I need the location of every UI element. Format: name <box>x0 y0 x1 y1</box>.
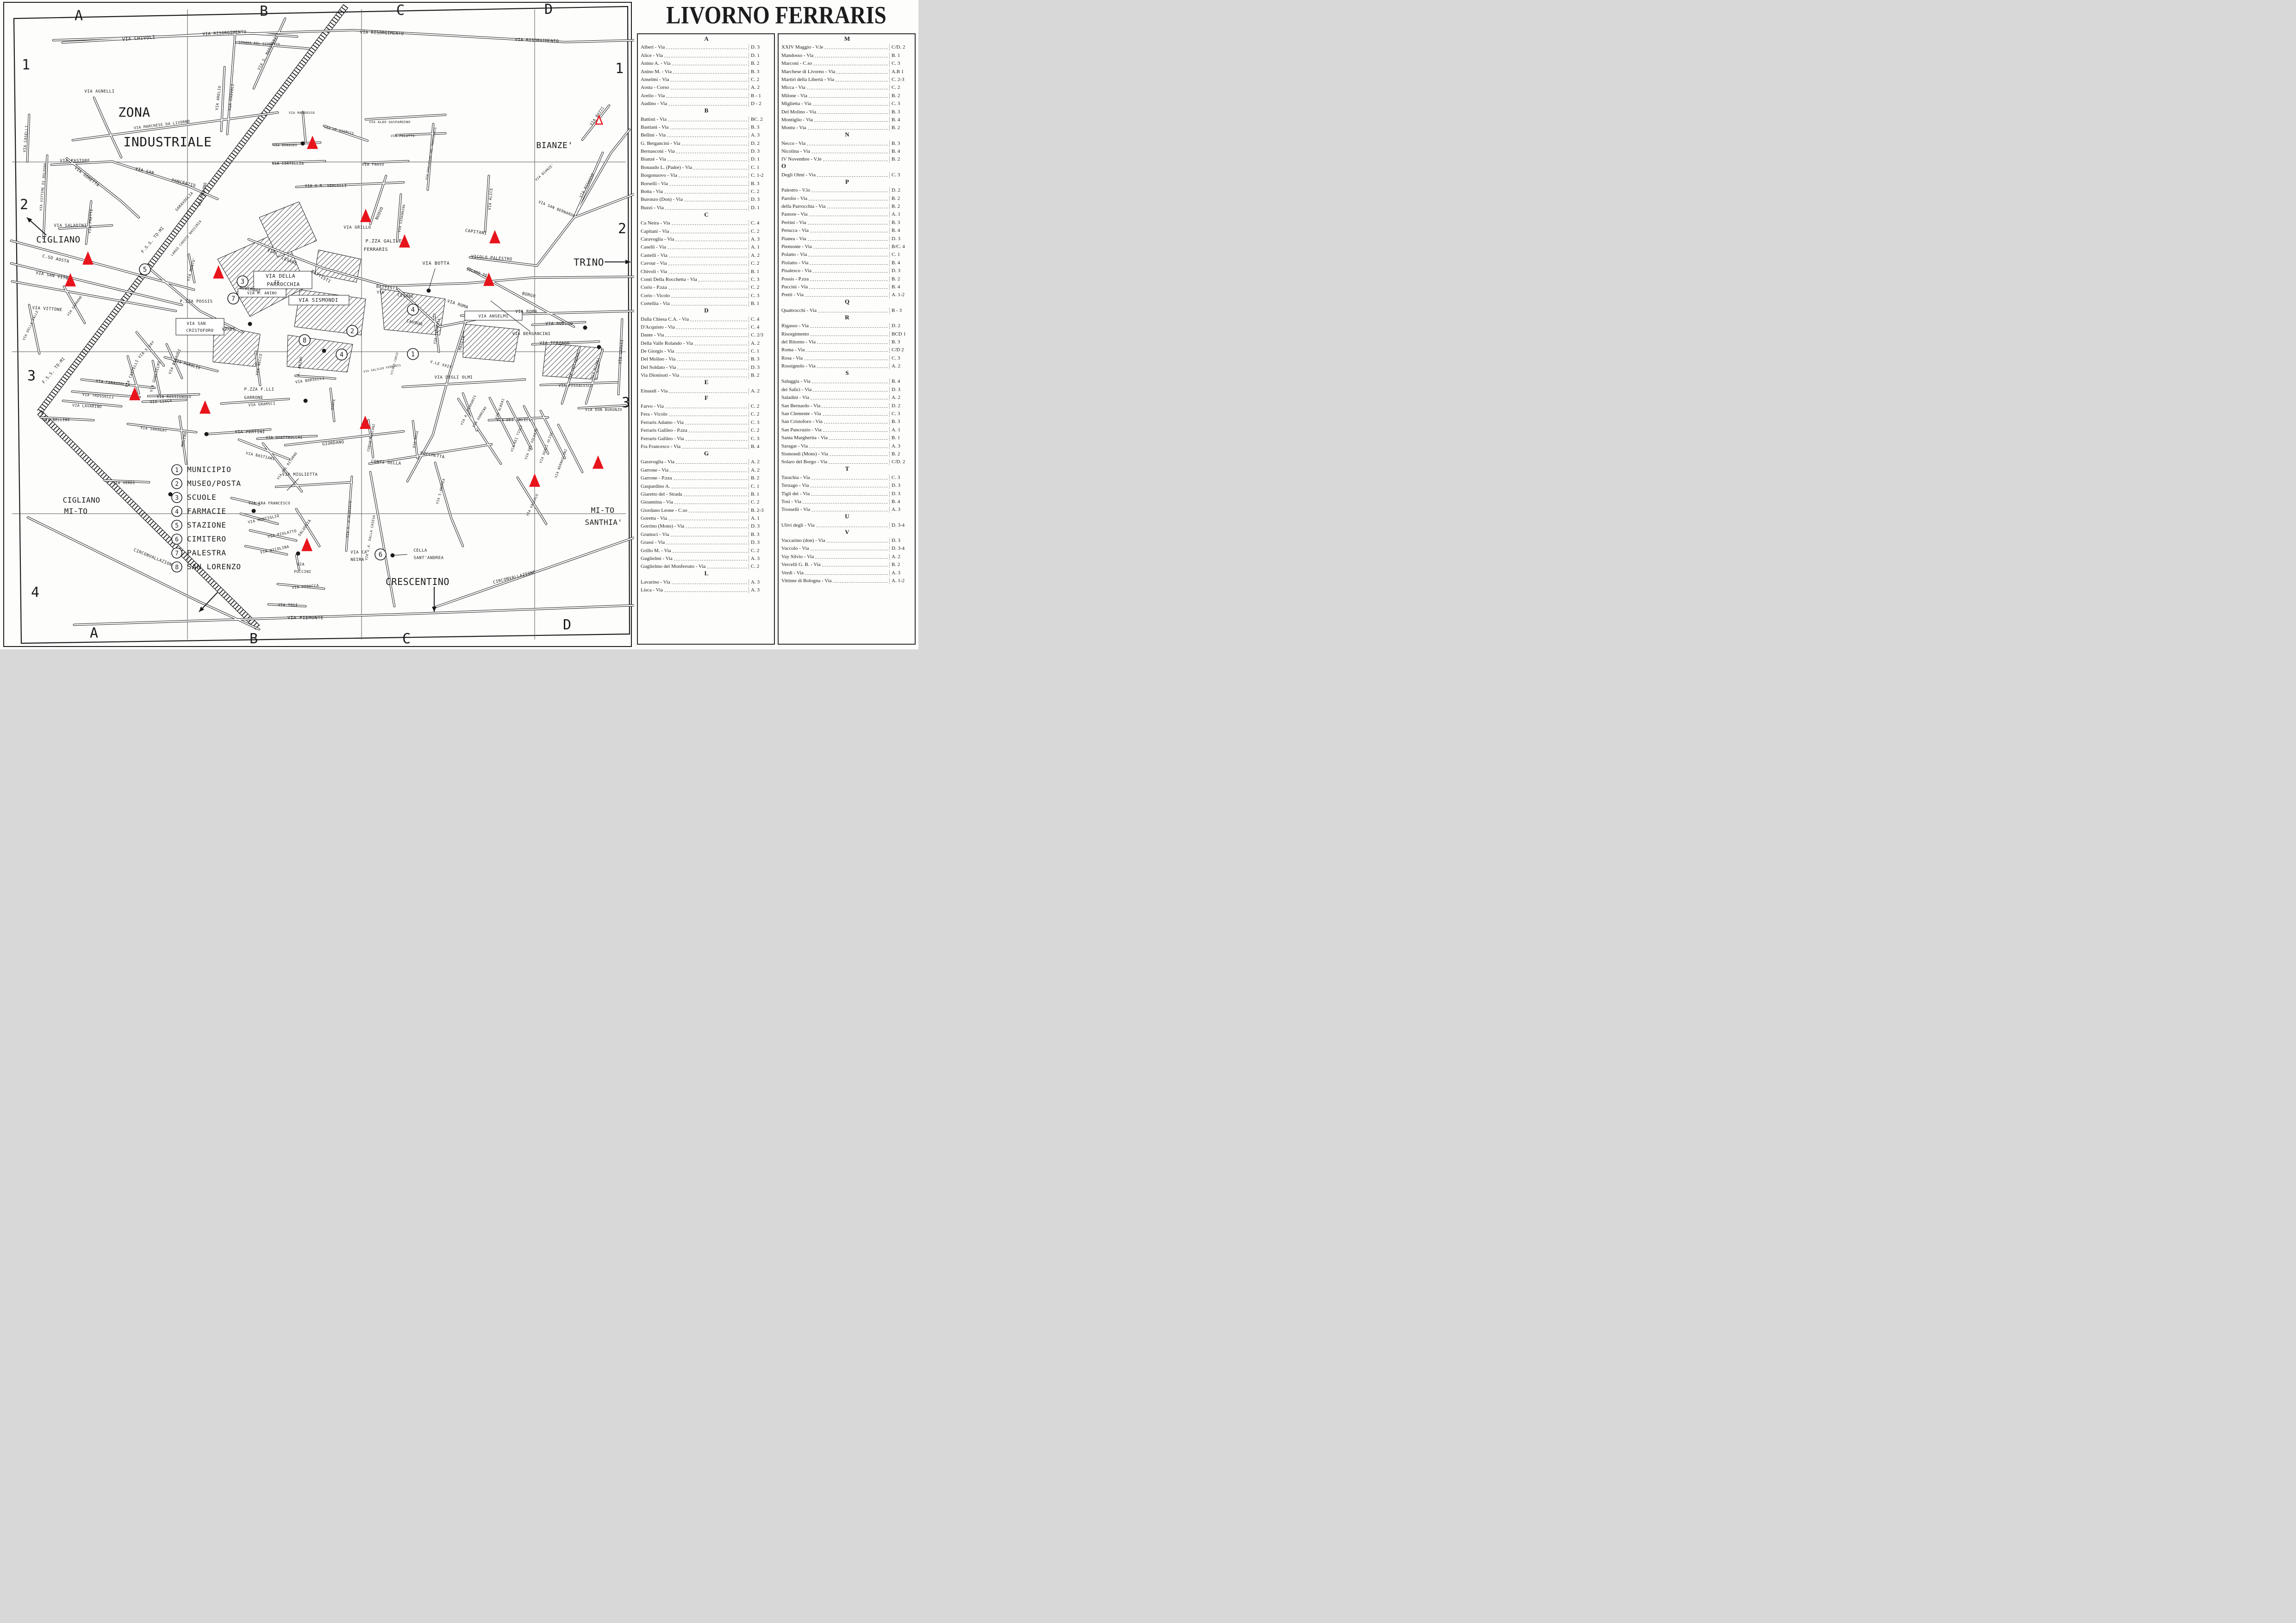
dotted-leader <box>809 200 888 200</box>
index-column-2: MXXIV Maggio - V.leC/D. 2Mandosso - ViaB… <box>778 33 916 645</box>
street-name: Pertini - Via <box>781 220 806 226</box>
dotted-leader <box>805 296 888 297</box>
road <box>263 443 302 491</box>
street-label: CIGLIANO <box>62 496 100 504</box>
street-label: P.ZZA F.LLI <box>244 387 274 392</box>
dotted-leader <box>803 503 888 504</box>
dotted-leader <box>707 568 747 568</box>
grid-reference: A. 3 <box>749 587 772 593</box>
dotted-leader <box>808 224 888 224</box>
street-name: San Bernardo - Via <box>781 403 820 409</box>
street-name: Piemonte - Via <box>781 244 812 250</box>
index-entry: Einaudi - ViaA. 2 <box>641 386 772 394</box>
map-marker-triangle <box>200 400 211 414</box>
street-label: VIA ALDO GASPARDINO <box>369 120 411 124</box>
index-entry: Cortellia - ViaB. 1 <box>641 299 772 307</box>
dotted-leader <box>672 224 747 225</box>
index-entry: Piemonte - ViaB/C. 4 <box>781 242 913 250</box>
grid-number-right: 1 <box>615 61 624 77</box>
index-entry: Trosselli - ViaA. 3 <box>781 505 913 513</box>
street-index-panel: LIVORNO FERRARIS AAlberi - ViaD. 3Alice … <box>635 0 917 649</box>
legend-label: CIMITERO <box>187 535 226 543</box>
index-entry: Garrone - ViaA. 2 <box>641 465 772 473</box>
dotted-leader <box>816 527 888 527</box>
street-name: Arelio - Via <box>641 93 665 99</box>
street-label: VIA DEGLI ULIVI <box>539 432 554 464</box>
street-name: Vittime di Bologna - Via <box>781 578 831 584</box>
dotted-leader <box>669 257 747 257</box>
street-label: VIA AUDINO <box>545 322 573 326</box>
grid-reference: B. 2 <box>889 204 913 210</box>
dotted-leader <box>685 424 747 424</box>
dotted-leader <box>810 280 888 281</box>
index-entry: Miglietta - ViaC. 3 <box>781 99 913 107</box>
street-label: CIRCONVALLAZIONE <box>133 548 175 569</box>
index-entry: Lisca - ViaA. 3 <box>641 585 772 593</box>
index-entry: RisorgimentoBCD 1 <box>781 329 913 337</box>
dotted-leader <box>674 479 748 480</box>
street-name: Bernasconi - Via <box>641 149 675 155</box>
map-marker-triangle <box>489 230 500 243</box>
index-entry: Mandosso - ViaB. 1 <box>781 50 913 58</box>
grid-letter-top: B <box>260 3 268 19</box>
dotted-leader <box>668 121 747 121</box>
index-entry: Ca Neira - ViaC. 4 <box>641 218 772 226</box>
dotted-leader <box>813 272 888 273</box>
index-entry: Corio - VicoloC. 3 <box>641 291 772 298</box>
dotted-leader <box>666 49 747 49</box>
dotted-leader <box>674 560 747 560</box>
dotted-leader <box>811 511 888 511</box>
street-label: VIA <box>297 562 305 566</box>
street-name: Capitani - Via <box>641 229 669 235</box>
index-entry: Anselmi - ViaC. 2 <box>641 75 772 83</box>
grid-reference: D. 1 <box>749 53 772 59</box>
index-entry: Buronzo (Don) - ViaD. 3 <box>641 195 772 203</box>
dotted-leader <box>817 113 888 114</box>
street-name: Corio - P.zza <box>641 285 667 291</box>
street-label: VIA ROSA <box>412 430 419 448</box>
poi-dot <box>304 399 308 403</box>
index-entry: Sismondi (Mons) - ViaB. 2 <box>781 449 913 457</box>
street-label: VIA VACCOLO <box>526 493 539 516</box>
street-label: VIA DON BURONZO <box>585 408 622 412</box>
grid-letter-top: D <box>544 1 553 18</box>
grid-reference: D. 3 <box>749 197 772 203</box>
street-name: Tosi - Via <box>781 499 801 505</box>
street-label: ZONA <box>118 105 150 120</box>
street-label: VIA PRETTI <box>87 209 94 234</box>
dotted-leader <box>665 209 747 210</box>
street-label: VIA MONTU' <box>186 257 196 282</box>
page-title: LIVORNO FERRARIS <box>635 1 917 30</box>
street-name: San Cristoforo - Via <box>781 419 823 425</box>
street-label: VIA ROMA <box>515 310 537 314</box>
street-name: Puccini - Via <box>781 284 808 290</box>
index-entry: Palestro - V.loD. 2 <box>781 186 913 193</box>
legend-number: 5 <box>175 522 179 529</box>
poi-number: 7 <box>231 295 235 303</box>
grid-reference: C. 3 <box>749 420 772 426</box>
index-entry: Gaspardino A.C. 1 <box>641 481 772 489</box>
built-up-block <box>463 324 519 362</box>
poi-dot <box>252 509 256 513</box>
index-entry: Tarachia - ViaC. 3 <box>781 473 913 480</box>
road <box>94 98 121 157</box>
dotted-leader <box>822 566 888 566</box>
dotted-leader <box>811 192 888 192</box>
index-entry: Vittime di Bologna - ViaA. 1-2 <box>781 576 913 584</box>
grid-number-right: 3 <box>622 395 630 411</box>
legend-label: FARMACIE <box>187 507 226 516</box>
legend-number: 4 <box>175 509 179 516</box>
index-entry: Alberi - ViaD. 3 <box>641 43 772 50</box>
road <box>366 115 445 119</box>
dotted-leader <box>811 550 888 550</box>
street-name: Gramsci - Via <box>641 532 669 538</box>
index-entry: Guglielmi - ViaA. 3 <box>641 554 772 562</box>
street-name: Possis - P.zza <box>781 276 809 282</box>
dotted-leader <box>806 351 888 352</box>
index-entry: San Cristoforo - ViaB. 3 <box>781 417 913 425</box>
index-entry: Quattrocchi - ViaB - 3 <box>781 305 913 313</box>
index-entry: San Bernardo - ViaD. 2 <box>781 401 913 409</box>
grid-reference: D. 3 <box>749 540 772 546</box>
street-name: Gaspardino A. <box>641 484 670 490</box>
dotted-leader <box>670 129 747 129</box>
index-section-letter: U <box>781 513 913 520</box>
dotted-leader <box>824 423 888 423</box>
street-name: Grillo M. - Via <box>641 548 671 554</box>
index-entry: Grassi - ViaD. 3 <box>641 538 772 546</box>
grid-reference: B. 3 <box>749 356 772 362</box>
street-label: SANTHIA' <box>585 518 622 527</box>
index-entry: Necco - ViaB. 3 <box>781 138 913 146</box>
index-entry: Roma - ViaC/D 2 <box>781 345 913 353</box>
street-label: VIA DEL SOLDATO <box>524 428 539 460</box>
index-entry: Vay Silvio - ViaA. 2 <box>781 552 913 560</box>
street-name: Rossignolo - Via <box>781 363 816 369</box>
street-label: VIA CORTELLIA <box>272 162 304 166</box>
index-section-letter: C <box>641 211 772 218</box>
street-name: Montu - Via <box>781 125 806 131</box>
index-entry: Degli Olmi - ViaC. 3 <box>781 170 913 178</box>
street-label: TRINO <box>574 257 604 268</box>
street-label: VIA PISSALESCO <box>559 384 593 388</box>
grid-reference: D. 3 <box>889 268 913 274</box>
grid-reference: C. 1 <box>749 484 772 490</box>
grid-letter-bottom: A <box>90 625 98 641</box>
grid-reference: B. 2 <box>749 373 772 379</box>
street-name: Gioannina - Via <box>641 499 673 505</box>
street-label: VIA GORETTA <box>73 166 100 188</box>
street-name: Bellini - Via <box>641 132 666 138</box>
poi-dot <box>296 552 300 556</box>
grid-reference: C. 2 <box>749 229 772 235</box>
dotted-leader <box>666 97 747 98</box>
index-entry: Tosi - ViaB. 4 <box>781 497 913 505</box>
legend-label: SAN LORENZO <box>187 562 241 571</box>
grid-reference: B. 1 <box>889 435 913 441</box>
street-label: PANCRAZIO <box>171 178 196 189</box>
street-label: VIA DE GIORGIS <box>324 125 354 136</box>
street-label: GARRONE <box>244 396 263 400</box>
grid-reference: C. 3 <box>889 411 913 417</box>
index-entry: IV Novembre - V.leB. 2 <box>781 155 913 162</box>
dotted-leader <box>811 399 888 399</box>
grid-reference: D. 3 <box>889 483 913 489</box>
dotted-leader <box>817 176 888 177</box>
grid-reference: A. 3 <box>889 443 913 449</box>
index-entry: Ulivi degli - ViaD. 3-4 <box>781 520 913 528</box>
dotted-leader <box>813 391 888 392</box>
grid-reference: D. 3-4 <box>889 522 913 529</box>
index-section-letter: R <box>781 314 913 321</box>
grid-reference: C. 2 <box>749 548 772 554</box>
street-name: Castelli - Via <box>641 253 668 259</box>
street-label: VIA ROMA <box>447 299 469 310</box>
dotted-leader <box>679 177 747 177</box>
index-entry: Audino - ViaD - 2 <box>641 99 772 107</box>
index-entry: De Giorgis - ViaC. 1 <box>641 347 772 354</box>
dotted-leader <box>668 105 747 106</box>
map-panel: ABCDABCD1234123VIA RISORGIMENTOVIA RISOR… <box>0 0 634 649</box>
street-label: VIA S. D'ACQUISTO <box>346 501 353 538</box>
street-name: Montiglio - Via <box>781 117 813 123</box>
index-entry: Pastore - ViaA. 1 <box>781 210 913 218</box>
street-label: VICOLO CORIO <box>390 352 399 375</box>
dotted-leader <box>667 137 747 137</box>
street-name: Battisti - Via <box>641 117 667 123</box>
dotted-leader <box>808 129 888 130</box>
grid-reference: B - 3 <box>889 308 913 314</box>
dotted-leader <box>669 392 747 393</box>
legend-number: 2 <box>175 481 179 488</box>
dotted-leader <box>689 512 747 512</box>
grid-reference: C. 2 <box>749 285 772 291</box>
street-name: Milone - Via <box>781 93 807 99</box>
street-label: VIA SAN <box>135 167 155 176</box>
grid-number-left: 4 <box>31 585 39 601</box>
street-name: Giordano Leone - C.so <box>641 508 687 514</box>
dotted-leader <box>693 169 747 169</box>
grid-reference: A. 3 <box>749 132 772 138</box>
index-entry: Bonaudo L. (Padre) - ViaC. 1 <box>641 162 772 170</box>
index-entry: Vaccolo - ViaD. 3-4 <box>781 544 913 552</box>
index-entry: Alice - ViaD. 1 <box>641 50 772 58</box>
grid-reference: D. 2 <box>889 403 913 409</box>
street-label: VIA SAN <box>187 322 206 326</box>
dotted-leader <box>672 488 747 488</box>
street-label: MI-TO <box>591 506 615 515</box>
dotted-leader <box>694 345 747 345</box>
road <box>11 263 182 305</box>
index-section-letter: O <box>781 162 913 170</box>
street-name: Pretti - Via <box>781 292 804 298</box>
street-name: Dalla Chiesa C.A. - Via <box>641 317 689 323</box>
grid-reference: C. 2 <box>749 428 772 434</box>
dotted-leader <box>833 582 888 583</box>
street-label: BIANZE' <box>536 141 573 150</box>
street-label: VIA DEI TIGLI <box>510 424 523 452</box>
dotted-leader <box>670 89 747 89</box>
index-entry: del Ritorno - ViaB. 3 <box>781 337 913 345</box>
grid-reference: C. 2 <box>749 261 772 267</box>
grid-reference: B. 4 <box>889 379 913 385</box>
index-entry: Bastiani - ViaB. 3 <box>641 123 772 131</box>
grid-reference: A. 3 <box>749 556 772 562</box>
grid-reference: B. 3 <box>749 69 772 75</box>
index-entry: Buzzi - ViaD. 1 <box>641 203 772 211</box>
grid-reference: C. 2 <box>749 411 772 417</box>
grid-reference: A. 2 <box>749 459 772 465</box>
street-name: San Pancrazio - Via <box>781 427 822 433</box>
street-name: Gorrino (Mons) - Via <box>641 523 684 529</box>
street-label: VIA POLATTO <box>391 134 415 138</box>
grid-reference: A. 1 <box>889 427 913 433</box>
street-label: VIA ARELIO <box>215 86 222 111</box>
index-entry: Anino A. - ViaB. 2 <box>641 59 772 67</box>
street-label: VIA SISMONDI <box>299 297 338 303</box>
dotted-leader <box>822 407 888 408</box>
index-entry: Botta - ViaC. 2 <box>641 187 772 195</box>
index-entry: Garavoglia - ViaA. 2 <box>641 457 772 465</box>
grid-reference: C. 1 <box>889 252 913 258</box>
poi-number: 1 <box>411 351 415 358</box>
index-section-letter: G <box>641 450 772 457</box>
index-entry: Fra Francesco - ViaB. 4 <box>641 442 772 450</box>
poi-dot <box>205 432 209 436</box>
dotted-leader <box>823 415 888 416</box>
index-entry: Farvo - ViaC. 2 <box>641 402 772 410</box>
grid-reference: D. 3-4 <box>889 546 913 552</box>
dotted-leader <box>813 248 888 249</box>
grid-letter-bottom: D <box>563 617 571 633</box>
dotted-leader <box>684 201 747 201</box>
poi-number: 8 <box>303 337 306 344</box>
grid-reference: C/D. 2 <box>889 459 913 465</box>
scanned-town-map-page: ABCDABCD1234123VIA RISORGIMENTOVIA RISOR… <box>0 0 918 649</box>
street-label: VIA BERGANCINI <box>512 332 551 336</box>
dotted-leader <box>674 504 747 504</box>
grid-reference: C. 2 <box>749 77 772 83</box>
dotted-leader <box>677 369 747 369</box>
index-entry: della Parrocchia - ViaB. 2 <box>781 202 913 210</box>
index-entry: Bianzè - ViaD. 1 <box>641 155 772 162</box>
street-label: VIA GRILLO <box>343 225 371 230</box>
grid-reference: B. 3 <box>889 220 913 226</box>
dotted-leader <box>682 448 747 448</box>
grid-reference: C. 4 <box>749 324 772 330</box>
grid-reference: B. 1 <box>749 491 772 497</box>
street-label: VIA TERZAGO <box>539 341 569 346</box>
grid-reference: D. 3 <box>749 523 772 529</box>
grid-reference: A. 2 <box>889 554 913 560</box>
street-label: VIA M. ANINO <box>247 291 277 295</box>
index-entry: Milone - ViaB. 2 <box>781 91 913 99</box>
grid-reference: B. 2 <box>749 61 772 67</box>
street-name: Lisca - Via <box>641 587 663 593</box>
map-marker-triangle <box>82 251 94 265</box>
index-entry: Gorrino (Mons) - ViaD. 3 <box>641 522 772 529</box>
legend-number: 3 <box>175 495 179 502</box>
index-entry: Rosa - ViaC. 3 <box>781 353 913 361</box>
street-label: VIA MANDOSSO <box>289 111 315 115</box>
grid-reference: B. 4 <box>889 117 913 123</box>
grid-reference: D. 3 <box>889 387 913 393</box>
dotted-leader <box>669 185 747 186</box>
index-entry: Chivoli - ViaB. 1 <box>641 267 772 274</box>
grid-reference: B. 4 <box>889 260 913 266</box>
dotted-leader <box>818 312 888 312</box>
index-entry: Rossignolo - ViaA. 2 <box>781 361 913 369</box>
grid-number-right: 2 <box>618 221 626 237</box>
index-section-letter: V <box>781 529 913 536</box>
dotted-leader <box>811 336 888 336</box>
street-label: MI-TO <box>64 507 88 516</box>
street-name: Garavoglia - Via <box>641 459 674 465</box>
grid-reference: B. 2 <box>749 475 772 481</box>
street-name: Santa Margherita - Via <box>781 435 828 441</box>
street-name: Ulivi degli - Via <box>781 522 815 529</box>
index-entry: dei Salici - ViaD. 3 <box>781 385 913 392</box>
road <box>403 379 525 387</box>
index-entry: Saragat - ViaA. 3 <box>781 441 913 449</box>
street-name: Micca - Via <box>781 85 805 91</box>
grid-letter-bottom: C <box>402 631 411 647</box>
street-name: Lavarino - Via <box>641 579 670 585</box>
grid-reference: C. 3 <box>889 101 913 107</box>
grid-reference: B. 2-3 <box>749 508 772 514</box>
grid-reference: A.B 1 <box>889 69 913 75</box>
street-name: Saragat - Via <box>781 443 808 449</box>
street-label: CRESCENTINO <box>386 576 449 587</box>
grid-reference: D. 3 <box>889 538 913 544</box>
index-entry: Guglielmo del Monferrato - ViaC. 2 <box>641 562 772 570</box>
index-section-letter: D <box>641 307 772 314</box>
grid-reference: B. 1 <box>749 269 772 275</box>
street-name: Conti Della Rocchetta - Via <box>641 277 697 283</box>
legend-label: MUNICIPIO <box>187 465 231 474</box>
grid-reference: C. 3 <box>749 293 772 299</box>
dotted-leader <box>811 495 888 496</box>
dotted-leader <box>815 57 888 57</box>
street-name: Sismondi (Mons) - Via <box>781 451 828 457</box>
legend-label: STAZIONE <box>187 521 226 529</box>
index-section-letter: A <box>641 35 772 43</box>
index-entry: Della Valle Rolando - ViaA. 2 <box>641 338 772 346</box>
street-name: Caravoglia - Via <box>641 236 674 243</box>
street-label: VIALE <box>222 327 236 332</box>
street-name: Pastore - Via <box>781 211 808 218</box>
grid-reference: C. 2 <box>749 404 772 410</box>
grid-letter-bottom: B <box>250 631 258 647</box>
street-label: VIA PERTINI <box>235 430 265 435</box>
street-name: IV Novembre - V.le <box>781 156 822 162</box>
grid-reference: A. 1 <box>749 516 772 522</box>
poi-number: 6 <box>379 551 382 559</box>
street-name: Bonaudo L. (Padre) - Via <box>641 165 692 171</box>
dotted-leader <box>809 288 888 289</box>
road <box>137 332 164 366</box>
dotted-leader <box>668 289 747 289</box>
index-entry: Rigasso - ViaD. 2 <box>781 321 913 329</box>
dotted-leader <box>672 584 747 584</box>
street-name: Buzzi - Via <box>641 205 664 211</box>
grid-reference: A. 3 <box>749 579 772 585</box>
street-name: Guglielmo del Monferrato - Via <box>641 564 705 570</box>
dotted-leader <box>670 536 747 536</box>
